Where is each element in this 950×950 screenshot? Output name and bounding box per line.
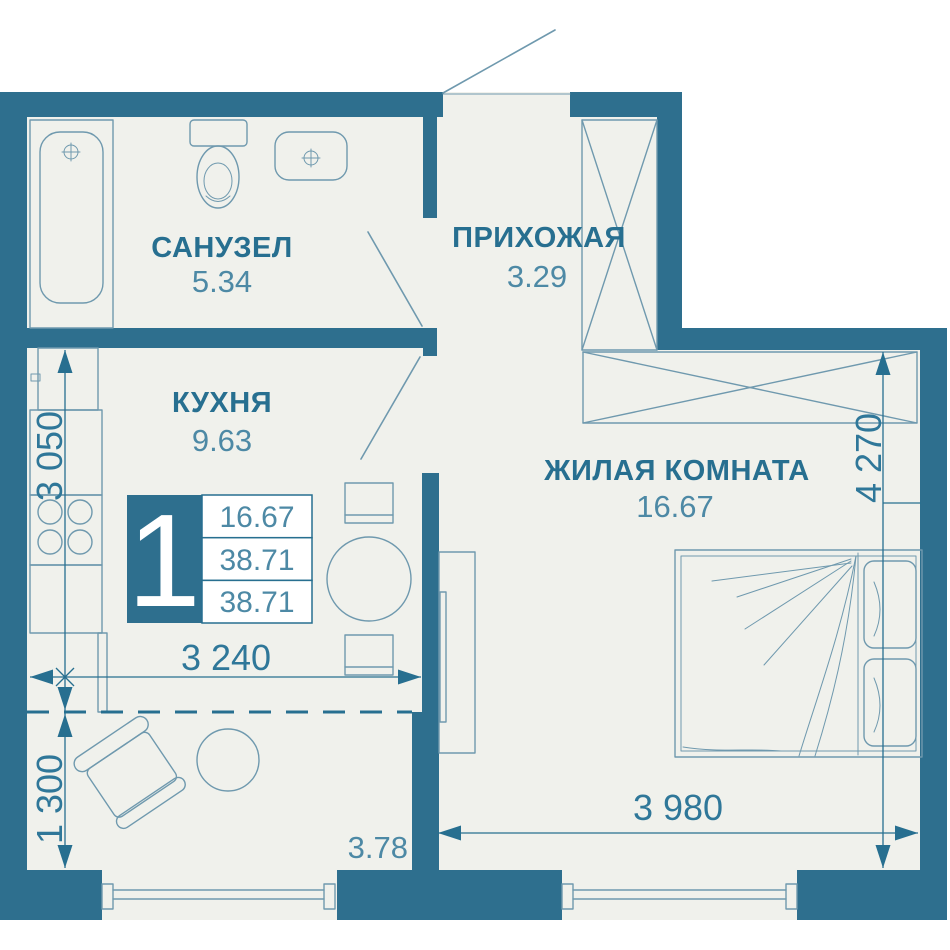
- wall-balcony-right: [412, 712, 439, 870]
- area-balcony: 3.78: [348, 830, 408, 865]
- label-kitchen: КУХНЯ: [172, 387, 272, 419]
- wall-bathroom-bottom: [0, 328, 437, 348]
- badge-value-2: 38.71: [219, 544, 294, 577]
- area-hallway: 3.29: [507, 259, 567, 294]
- floor-plan-svg: 3 050 1 300 3 240 4 270 3 980 САНУЗЕЛ 5.…: [0, 0, 950, 950]
- dim-kitchen-height: 3 050: [29, 411, 70, 501]
- wall-left: [0, 92, 27, 920]
- badge-room-count: 1: [127, 487, 200, 634]
- entrance-door-swing: [443, 30, 555, 93]
- area-kitchen: 9.63: [192, 423, 252, 458]
- wall-bottom-left: [0, 870, 102, 920]
- dim-kitchen-width: 3 240: [181, 637, 271, 678]
- badge-value-3: 38.71: [219, 586, 294, 619]
- area-bathroom: 5.34: [192, 264, 252, 299]
- wall-hallway-right: [657, 92, 682, 350]
- wall-top-left: [0, 92, 443, 117]
- label-bathroom: САНУЗЕЛ: [151, 232, 293, 264]
- dim-balcony-depth: 1 300: [29, 754, 70, 844]
- wall-right: [920, 328, 947, 920]
- wall-kitchen-right: [422, 473, 439, 712]
- dim-room-width: 3 980: [633, 787, 723, 828]
- info-badge: 1 16.67 38.71 38.71: [127, 487, 312, 634]
- label-hallway: ПРИХОЖАЯ: [452, 222, 626, 254]
- floor-plan: 3 050 1 300 3 240 4 270 3 980 САНУЗЕЛ 5.…: [0, 0, 950, 950]
- area-living-room: 16.67: [636, 489, 714, 524]
- wall-living-top: [657, 328, 947, 350]
- wall-bottom-middle: [337, 870, 562, 920]
- wall-bathroom-divider: [423, 117, 437, 218]
- label-living-room: ЖИЛАЯ КОМНАТА: [543, 455, 809, 487]
- badge-value-1: 16.67: [219, 501, 294, 534]
- dim-room-height: 4 270: [848, 413, 889, 503]
- wall-bathroom-bottom-stub: [423, 348, 437, 356]
